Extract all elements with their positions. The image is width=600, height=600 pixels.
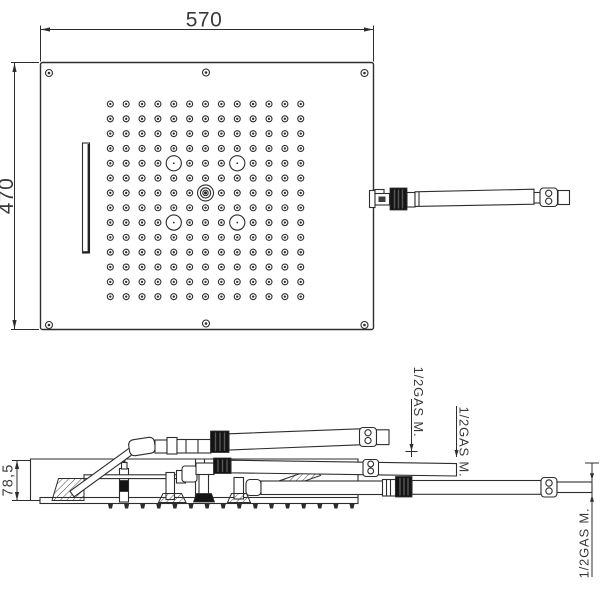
nozzle-dot	[220, 207, 222, 209]
elbow-detail	[379, 197, 386, 203]
nozzle-dot	[300, 251, 302, 253]
spray-tick	[108, 504, 113, 509]
nozzle-dot	[252, 251, 254, 253]
nozzle-dot	[204, 118, 206, 120]
nozzle-dot	[204, 162, 206, 164]
nozzle-dot	[268, 147, 270, 149]
nozzle-dot	[157, 162, 159, 164]
wall-connector	[370, 191, 376, 208]
nozzle-dot	[220, 236, 222, 238]
nozzle-dot	[141, 177, 143, 179]
nozzle-dot	[125, 132, 127, 134]
nozzle-dot	[109, 251, 111, 253]
nozzle-dot	[141, 296, 143, 298]
nozzle-dot	[268, 118, 270, 120]
nozzle-dot	[189, 192, 191, 194]
nozzle-dot	[236, 132, 238, 134]
end-pipe	[557, 482, 592, 493]
nozzle-dot	[125, 221, 127, 223]
nozzle-dot	[173, 192, 175, 194]
big-jet-dot	[236, 162, 238, 164]
nozzle-dot	[125, 207, 127, 209]
nozzle-dot	[204, 236, 206, 238]
nozzle-dot	[252, 147, 254, 149]
nozzle-dot	[204, 147, 206, 149]
nozzle-dot	[204, 177, 206, 179]
arrow-right-icon	[364, 27, 373, 31]
spray-tick	[269, 504, 274, 509]
nozzle-dot	[220, 118, 222, 120]
nozzle-dot	[252, 296, 254, 298]
nozzle-dot	[268, 177, 270, 179]
spray-tick	[317, 504, 322, 509]
nozzle-dot	[284, 281, 286, 283]
nozzle-dot	[252, 281, 254, 283]
joint	[246, 480, 261, 496]
nozzle-dot	[189, 236, 191, 238]
top-view: 570 470	[0, 9, 570, 330]
nozzle-dot	[109, 296, 111, 298]
pipe-base	[159, 494, 187, 503]
spray-tick	[349, 504, 354, 509]
spray-tick	[285, 504, 290, 509]
big-jet-dot	[236, 222, 238, 224]
nozzle-dot	[109, 207, 111, 209]
nozzle-dot	[284, 192, 286, 194]
nozzle-dot	[157, 207, 159, 209]
nozzle-dot	[173, 236, 175, 238]
arrow-up-icon	[590, 495, 594, 502]
nozzle-dot	[252, 221, 254, 223]
nozzle-dot	[300, 132, 302, 134]
nozzle-dot	[157, 281, 159, 283]
nozzle-dot	[189, 207, 191, 209]
nozzle-dot	[157, 266, 159, 268]
nozzle-dot	[141, 266, 143, 268]
nozzle-dot	[300, 266, 302, 268]
nozzle-dot	[204, 221, 206, 223]
nozzle-dot	[268, 162, 270, 164]
collar	[177, 440, 211, 454]
standpipe-band	[120, 481, 129, 492]
nozzle-dot	[189, 221, 191, 223]
nozzle-dot	[236, 296, 238, 298]
nozzle-dot	[220, 147, 222, 149]
nozzle-dot	[268, 192, 270, 194]
nozzle-dot	[173, 266, 175, 268]
spray-tick	[237, 504, 242, 509]
nozzle-dot	[236, 207, 238, 209]
nozzle-dot	[284, 162, 286, 164]
nozzle-dot	[157, 177, 159, 179]
nozzle-dot	[141, 221, 143, 223]
nozzle-dot	[173, 296, 175, 298]
nozzle-dot	[141, 147, 143, 149]
nozzle-dot	[204, 296, 206, 298]
nozzle-dot	[268, 281, 270, 283]
nozzle-dot	[141, 103, 143, 105]
connector	[383, 480, 396, 497]
nozzle-dot	[141, 192, 143, 194]
nozzle-dot	[109, 118, 111, 120]
nozzle-dot	[189, 281, 191, 283]
arrow-down-icon	[410, 444, 414, 451]
nozzle-dot	[220, 281, 222, 283]
nozzle-dot	[284, 221, 286, 223]
nozzle-dot	[189, 132, 191, 134]
nozzle-dot	[173, 281, 175, 283]
nozzle-dot	[236, 281, 238, 283]
nozzle-dot	[125, 177, 127, 179]
side-view: 78,5	[1, 367, 600, 579]
hose-body	[229, 429, 360, 450]
big-jet-dot	[173, 222, 175, 224]
nozzle-dot	[204, 281, 206, 283]
nozzle-dot	[173, 251, 175, 253]
nozzle-dot	[189, 103, 191, 105]
nozzle-dot	[220, 132, 222, 134]
nozzle-dot	[284, 132, 286, 134]
nozzle-dot	[157, 132, 159, 134]
nozzle-dot	[204, 266, 206, 268]
nozzle-dot	[109, 221, 111, 223]
nozzle-dot	[300, 296, 302, 298]
nozzle-dot	[141, 132, 143, 134]
nozzle-dot	[284, 103, 286, 105]
spray-tick	[188, 504, 193, 509]
nozzle-dot	[284, 266, 286, 268]
nozzle-dot	[173, 132, 175, 134]
nozzle-dot	[109, 132, 111, 134]
nozzle-dot	[300, 103, 302, 105]
nozzle-dot	[157, 103, 159, 105]
nozzle-dot	[189, 162, 191, 164]
center-jet-dot	[204, 191, 207, 194]
technical-drawing-sheet: 570 470	[0, 0, 600, 600]
dim-height: 470	[0, 63, 39, 330]
nozzle-dot	[204, 103, 206, 105]
nozzle-dot	[268, 236, 270, 238]
nozzle-dot	[284, 118, 286, 120]
dim-height-label: 470	[0, 178, 18, 215]
nozzle-dot	[173, 207, 175, 209]
spray-tick	[301, 504, 306, 509]
nozzle-dot	[125, 251, 127, 253]
nozzle-dot	[236, 147, 238, 149]
hose-collar	[407, 193, 415, 208]
nozzle-dot	[109, 162, 111, 164]
hose-body	[412, 481, 541, 495]
nozzle-dot	[189, 177, 191, 179]
connection-label-1: 1/2GAS M.	[411, 367, 426, 438]
nozzle-dot	[300, 236, 302, 238]
connection-label-2: 1/2GAS M.	[457, 407, 472, 478]
nozzle-dot	[268, 251, 270, 253]
nozzle-dot	[189, 251, 191, 253]
arrow-left-icon	[41, 27, 50, 31]
hose-body	[231, 460, 457, 476]
nozzle-dot	[173, 177, 175, 179]
spray-tick	[333, 504, 338, 509]
nozzle-dot	[157, 251, 159, 253]
nozzle-dot	[141, 162, 143, 164]
nozzle-dot	[109, 266, 111, 268]
nozzle-dot	[236, 266, 238, 268]
nozzle-dot	[268, 221, 270, 223]
nozzle-dot	[125, 236, 127, 238]
nozzle-dot	[125, 296, 127, 298]
nozzle-dot	[236, 236, 238, 238]
spray-tick	[205, 504, 210, 509]
nozzle-dot	[204, 207, 206, 209]
dim-width: 570	[41, 9, 374, 62]
nozzle-dot	[300, 221, 302, 223]
nozzle-dot	[284, 177, 286, 179]
nozzle-dot	[300, 207, 302, 209]
spray-tick	[172, 504, 177, 509]
nozzle-dot	[157, 118, 159, 120]
nozzle-dot	[284, 207, 286, 209]
nozzle-dot	[173, 118, 175, 120]
shower-head-drawing: 570 470	[0, 0, 600, 600]
arrow-up-icon	[12, 63, 16, 72]
spray-tick	[221, 504, 226, 509]
nozzle-dot	[284, 147, 286, 149]
nozzle-dot	[300, 281, 302, 283]
nozzle-dot	[189, 118, 191, 120]
nozzle-dot	[220, 296, 222, 298]
nozzle-dot	[141, 207, 143, 209]
nozzle-dot	[252, 236, 254, 238]
nozzle-dot	[252, 207, 254, 209]
elbow-fitting	[128, 437, 156, 457]
nozzle-dot	[300, 162, 302, 164]
nozzle-dot	[236, 251, 238, 253]
nozzle-dot	[204, 251, 206, 253]
nozzle-dot	[125, 266, 127, 268]
nozzle-dot	[252, 266, 254, 268]
nozzle-dot	[125, 103, 127, 105]
nozzle-dot	[220, 177, 222, 179]
nozzle-dot	[220, 221, 222, 223]
nozzle-dot	[109, 281, 111, 283]
nozzle-dot	[268, 103, 270, 105]
spray-tick	[140, 504, 145, 509]
riser-foot	[194, 494, 215, 503]
spray-nozzle-ticks	[108, 504, 355, 509]
spray-tick	[124, 504, 129, 509]
center-jet	[198, 185, 214, 201]
nozzle-dot	[173, 103, 175, 105]
elbow-fitting	[182, 466, 197, 482]
nozzle-dot	[157, 192, 159, 194]
nozzle-dot	[236, 192, 238, 194]
nozzle-dot	[268, 266, 270, 268]
spray-tick	[253, 504, 258, 509]
nozzle-dot	[268, 132, 270, 134]
arrow-down-icon	[12, 320, 16, 329]
connection-callout-1: 1/2GAS M.	[406, 367, 427, 457]
hose-plan-view	[370, 188, 570, 210]
nut	[167, 438, 177, 455]
nozzle-dot	[300, 118, 302, 120]
nozzle-dot	[204, 132, 206, 134]
nozzle-dot	[284, 251, 286, 253]
nozzle-dot	[109, 177, 111, 179]
spray-tick	[156, 504, 161, 509]
nozzle-dot	[220, 103, 222, 105]
dim-width-label: 570	[186, 9, 223, 32]
nozzle-dot	[157, 236, 159, 238]
nozzle-dot	[284, 296, 286, 298]
nozzle-dot	[109, 103, 111, 105]
nozzle-dot	[189, 296, 191, 298]
nozzle-dot	[220, 266, 222, 268]
nozzle-dot	[236, 118, 238, 120]
nozzle-dot	[189, 147, 191, 149]
nozzle-dot	[157, 147, 159, 149]
end-fitting	[377, 430, 390, 445]
nozzle-dot	[125, 118, 127, 120]
nozzle-dot	[125, 147, 127, 149]
hose-middle	[177, 458, 457, 483]
end-fitting	[558, 191, 570, 205]
panel-outline	[41, 63, 374, 330]
nozzle-dot	[141, 236, 143, 238]
nozzle-dot	[141, 118, 143, 120]
nozzle-dot	[252, 132, 254, 134]
nozzle-dot	[300, 192, 302, 194]
nozzle-dot	[236, 177, 238, 179]
nozzle-dot	[252, 118, 254, 120]
swivel-fitting	[540, 188, 558, 207]
nozzle-dot	[220, 162, 222, 164]
arrow-down-icon	[590, 473, 594, 480]
nozzle-dot	[141, 281, 143, 283]
nozzle-dot	[252, 103, 254, 105]
dim-profile-height: 78,5	[1, 461, 49, 501]
big-jet-dot	[173, 162, 175, 164]
nozzle-dot	[268, 207, 270, 209]
nozzle-dot	[300, 147, 302, 149]
nozzle-dot	[109, 192, 111, 194]
nozzle-dot	[157, 221, 159, 223]
connector	[196, 463, 214, 475]
connection-label-3: 1/2GAS M.	[577, 508, 592, 579]
nozzle-dot	[125, 281, 127, 283]
nozzle-dot	[252, 177, 254, 179]
connection-callout-3: 1/2GAS M.	[577, 463, 600, 578]
nozzle-dot	[220, 192, 222, 194]
nozzle-dot	[284, 236, 286, 238]
connection-callout-2: 1/2GAS M.	[455, 406, 472, 477]
nozzle-dot	[125, 192, 127, 194]
nozzle-dot	[268, 296, 270, 298]
hose-body	[415, 189, 534, 206]
nozzle-dot	[173, 147, 175, 149]
standpipe-cap	[122, 463, 128, 470]
nozzle-dot	[141, 251, 143, 253]
dim-profile-label: 78,5	[1, 463, 17, 496]
nozzle-dot	[236, 103, 238, 105]
nozzle-dot	[252, 192, 254, 194]
waterfall-slot	[83, 143, 91, 253]
nozzle-dot	[109, 236, 111, 238]
nozzle-dot	[220, 251, 222, 253]
nut	[155, 440, 167, 453]
nozzle-dot	[125, 162, 127, 164]
nozzle-dot	[157, 296, 159, 298]
nozzle-dot	[252, 162, 254, 164]
hose-body	[261, 481, 383, 495]
nozzle-dot	[300, 177, 302, 179]
nozzle-dot	[109, 147, 111, 149]
nozzle-dot	[189, 266, 191, 268]
